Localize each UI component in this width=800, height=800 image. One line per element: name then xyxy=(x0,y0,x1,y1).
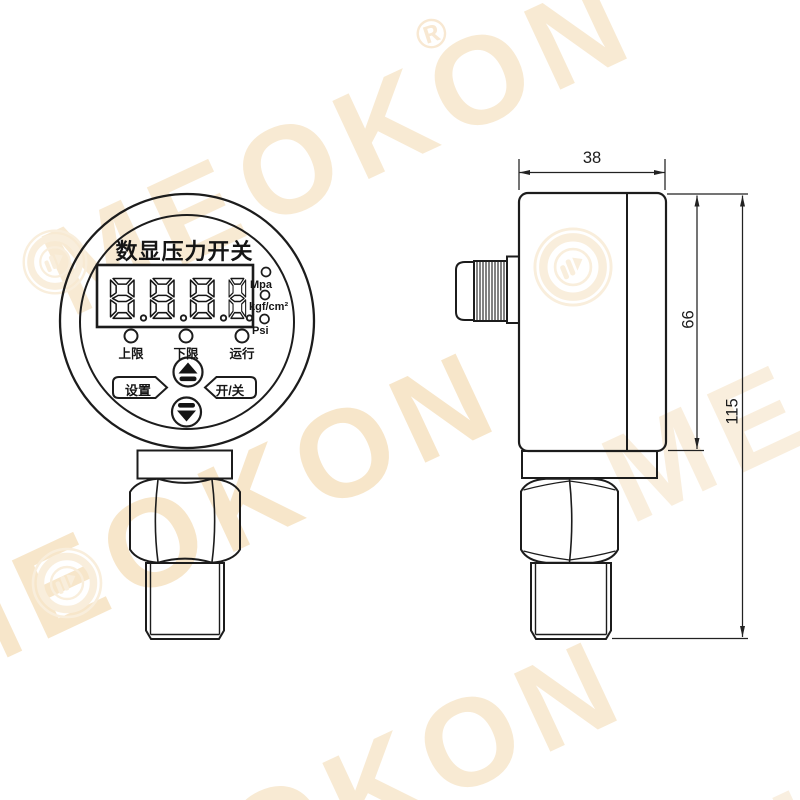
dimension-66: 66 xyxy=(680,300,699,340)
arrowhead xyxy=(740,196,745,207)
dimension-115: 115 xyxy=(724,387,743,437)
front-fittings xyxy=(130,451,240,640)
arrowhead xyxy=(695,438,700,449)
up-arrow-icon xyxy=(179,363,198,374)
set-button-label[interactable]: 设置 xyxy=(114,380,162,399)
dimension-lines xyxy=(519,159,748,639)
arrowhead xyxy=(695,196,700,207)
connector-collar-side xyxy=(522,451,657,478)
lcd-display xyxy=(97,265,253,327)
housing-body xyxy=(519,193,666,451)
status-label-lower-limit: 下限 xyxy=(164,343,208,362)
status-label-run: 运行 xyxy=(220,343,264,362)
threaded-stem xyxy=(146,563,224,639)
side-view xyxy=(456,159,748,639)
psi-led xyxy=(260,315,269,324)
down-button[interactable] xyxy=(172,398,201,427)
unit-indicator-leds xyxy=(260,268,271,324)
gland-grip xyxy=(474,261,507,321)
arrowhead xyxy=(519,170,530,175)
technical-drawing-canvas: MEOKON MEOKON MEOKON MEOKON MEOKON ® xyxy=(0,0,800,800)
unit-label-mpa: Mpa xyxy=(250,279,272,291)
connector-collar xyxy=(138,451,233,479)
gauge-title: 数显压力开关 xyxy=(87,234,282,266)
gland-cap xyxy=(456,262,474,320)
hex-nut xyxy=(130,479,240,563)
gland-flange xyxy=(507,257,519,324)
unit-label-kgfcm2: kgf/cm² xyxy=(249,301,288,313)
power-button-label[interactable]: 开/关 xyxy=(206,380,254,399)
arrowhead xyxy=(740,626,745,637)
unit-label-psi: Psi xyxy=(252,325,269,337)
cable-gland xyxy=(456,257,519,324)
threaded-stem-side xyxy=(531,563,611,639)
status-label-upper-limit: 上限 xyxy=(109,343,153,362)
mpa-led xyxy=(262,268,271,277)
down-arrow-icon xyxy=(177,411,196,422)
arrowhead xyxy=(654,170,665,175)
side-fittings xyxy=(521,451,657,639)
status-lamps xyxy=(125,330,249,343)
dimension-38: 38 xyxy=(567,149,617,168)
hex-nut-side xyxy=(521,479,618,563)
upper-limit-lamp xyxy=(125,330,138,343)
lower-limit-lamp xyxy=(180,330,193,343)
kgfcm2-led xyxy=(261,291,270,300)
run-lamp xyxy=(236,330,249,343)
